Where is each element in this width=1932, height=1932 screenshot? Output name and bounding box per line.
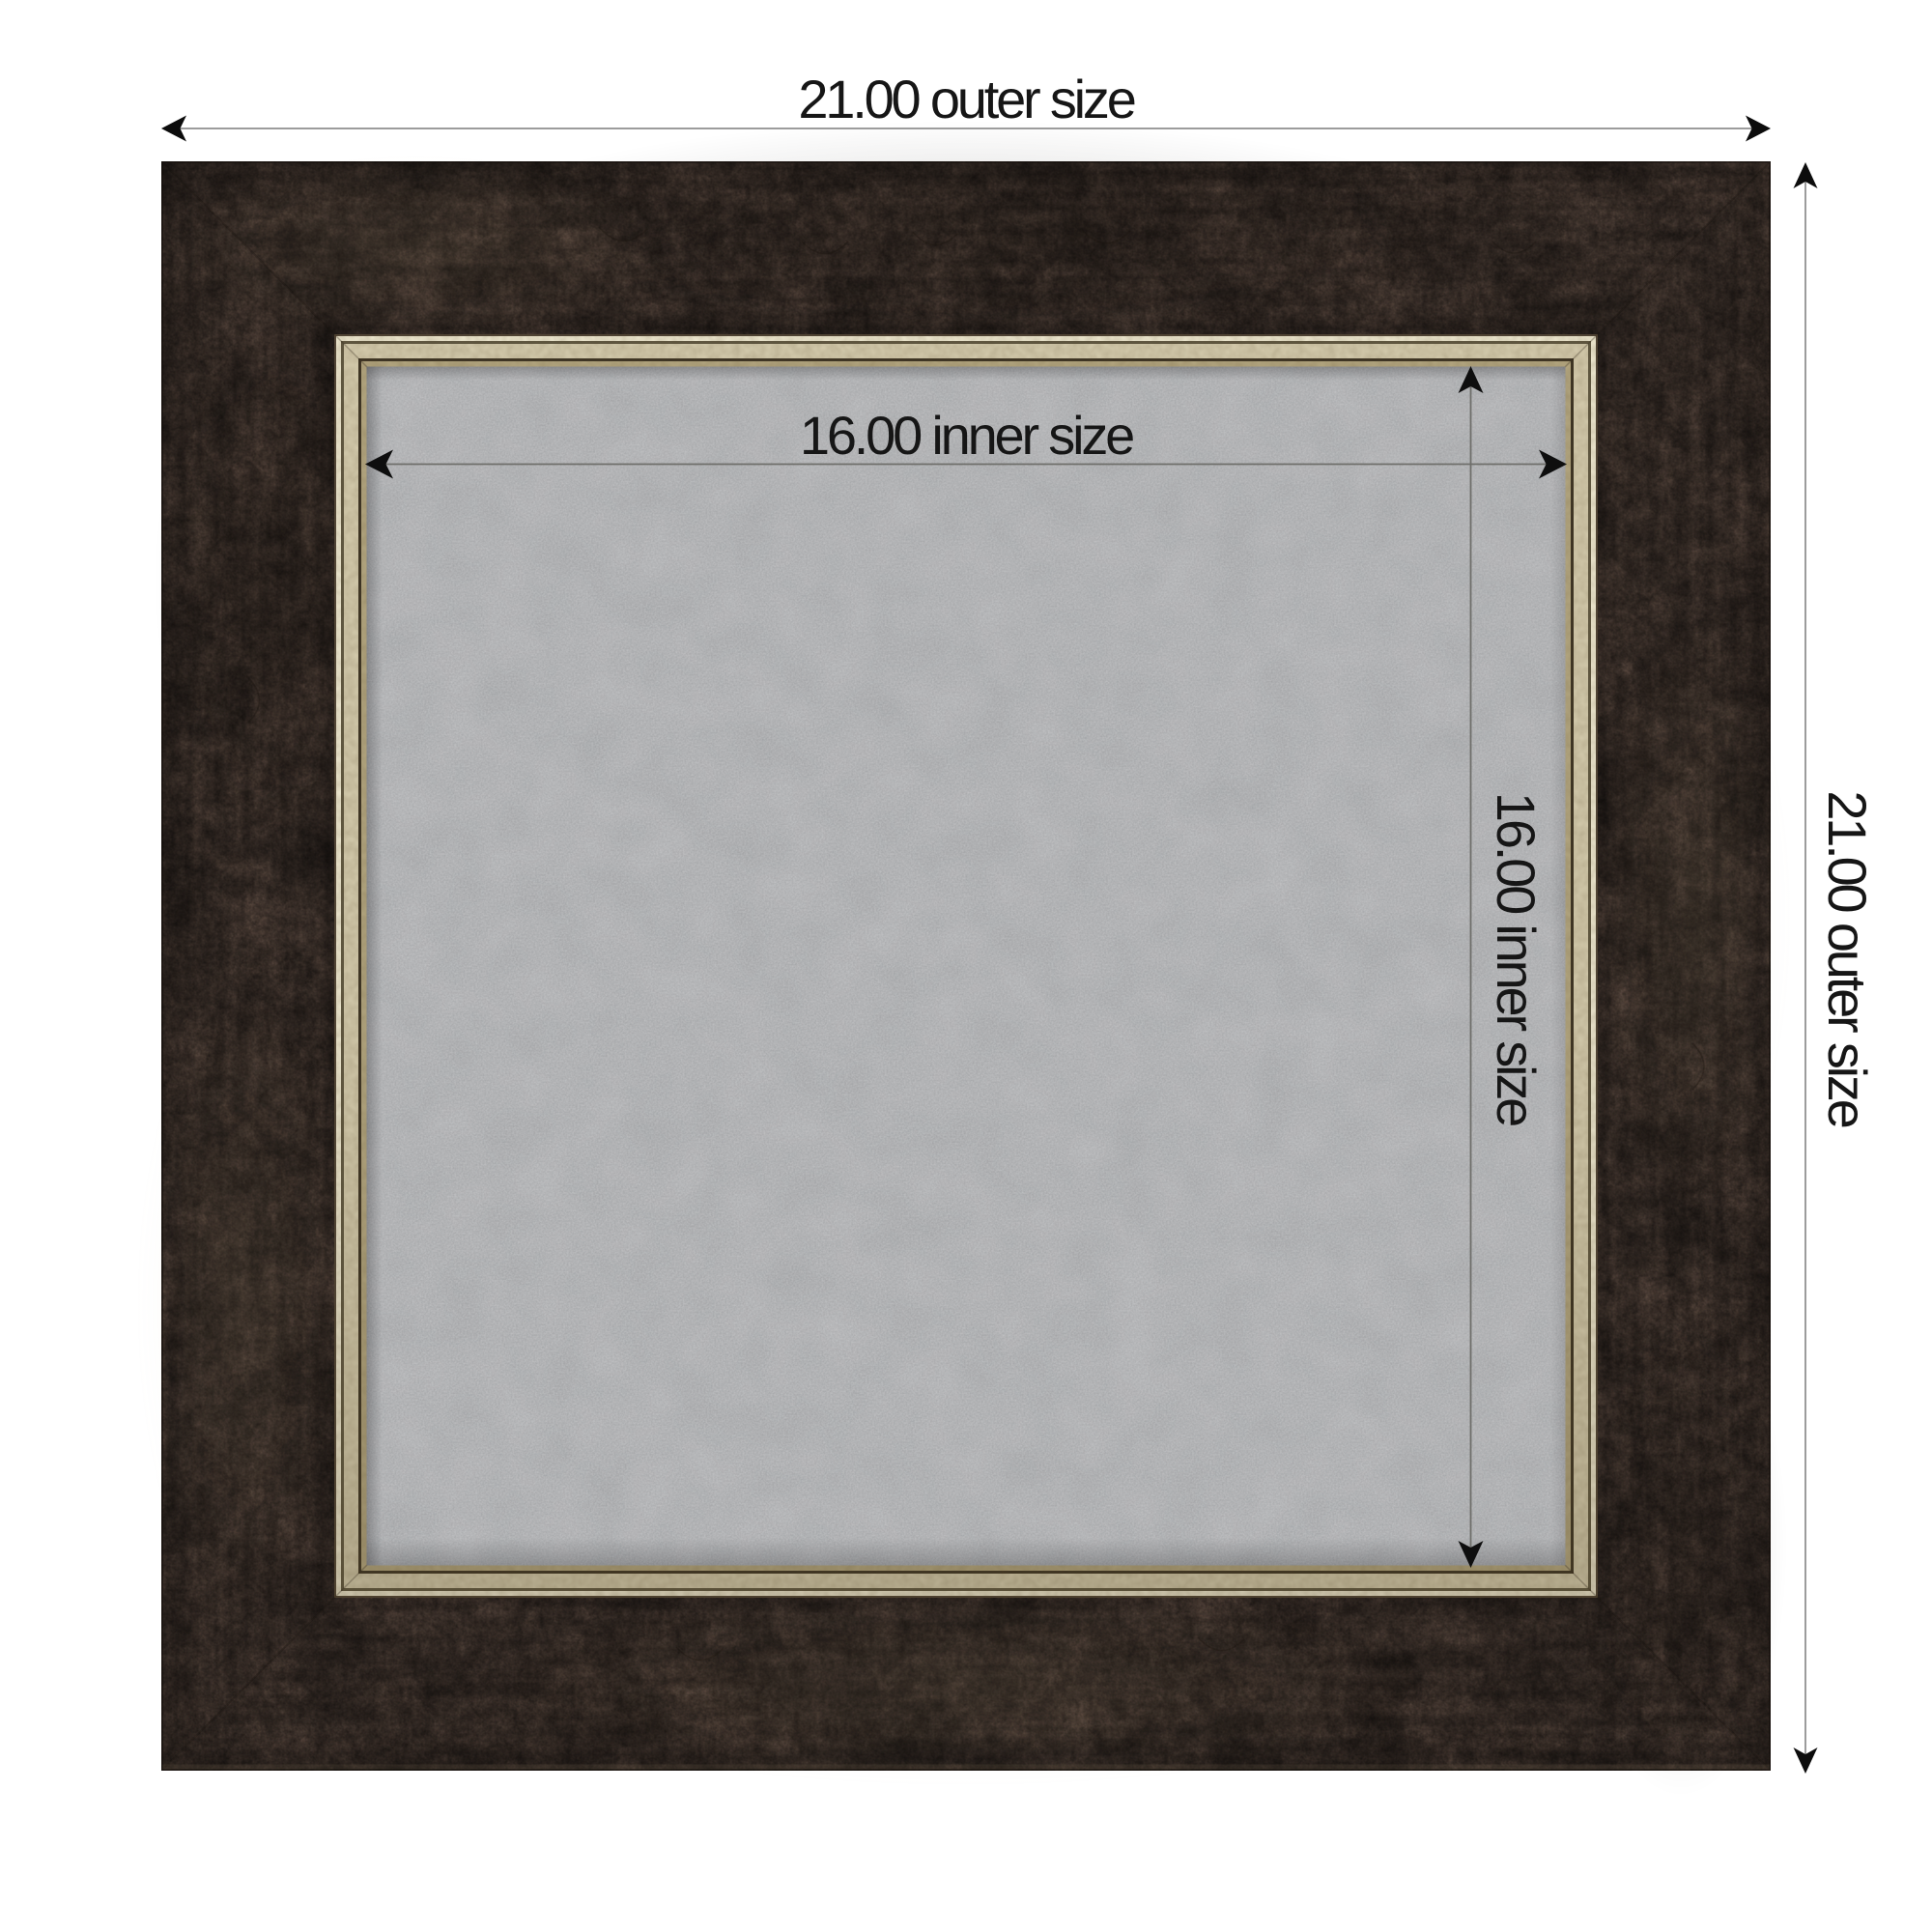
svg-text:21.00 outer size: 21.00 outer size: [1817, 790, 1878, 1126]
svg-text:16.00 inner size: 16.00 inner size: [1486, 792, 1547, 1125]
svg-text:21.00 outer size: 21.00 outer size: [798, 69, 1134, 129]
svg-text:16.00 inner size: 16.00 inner size: [800, 405, 1133, 466]
